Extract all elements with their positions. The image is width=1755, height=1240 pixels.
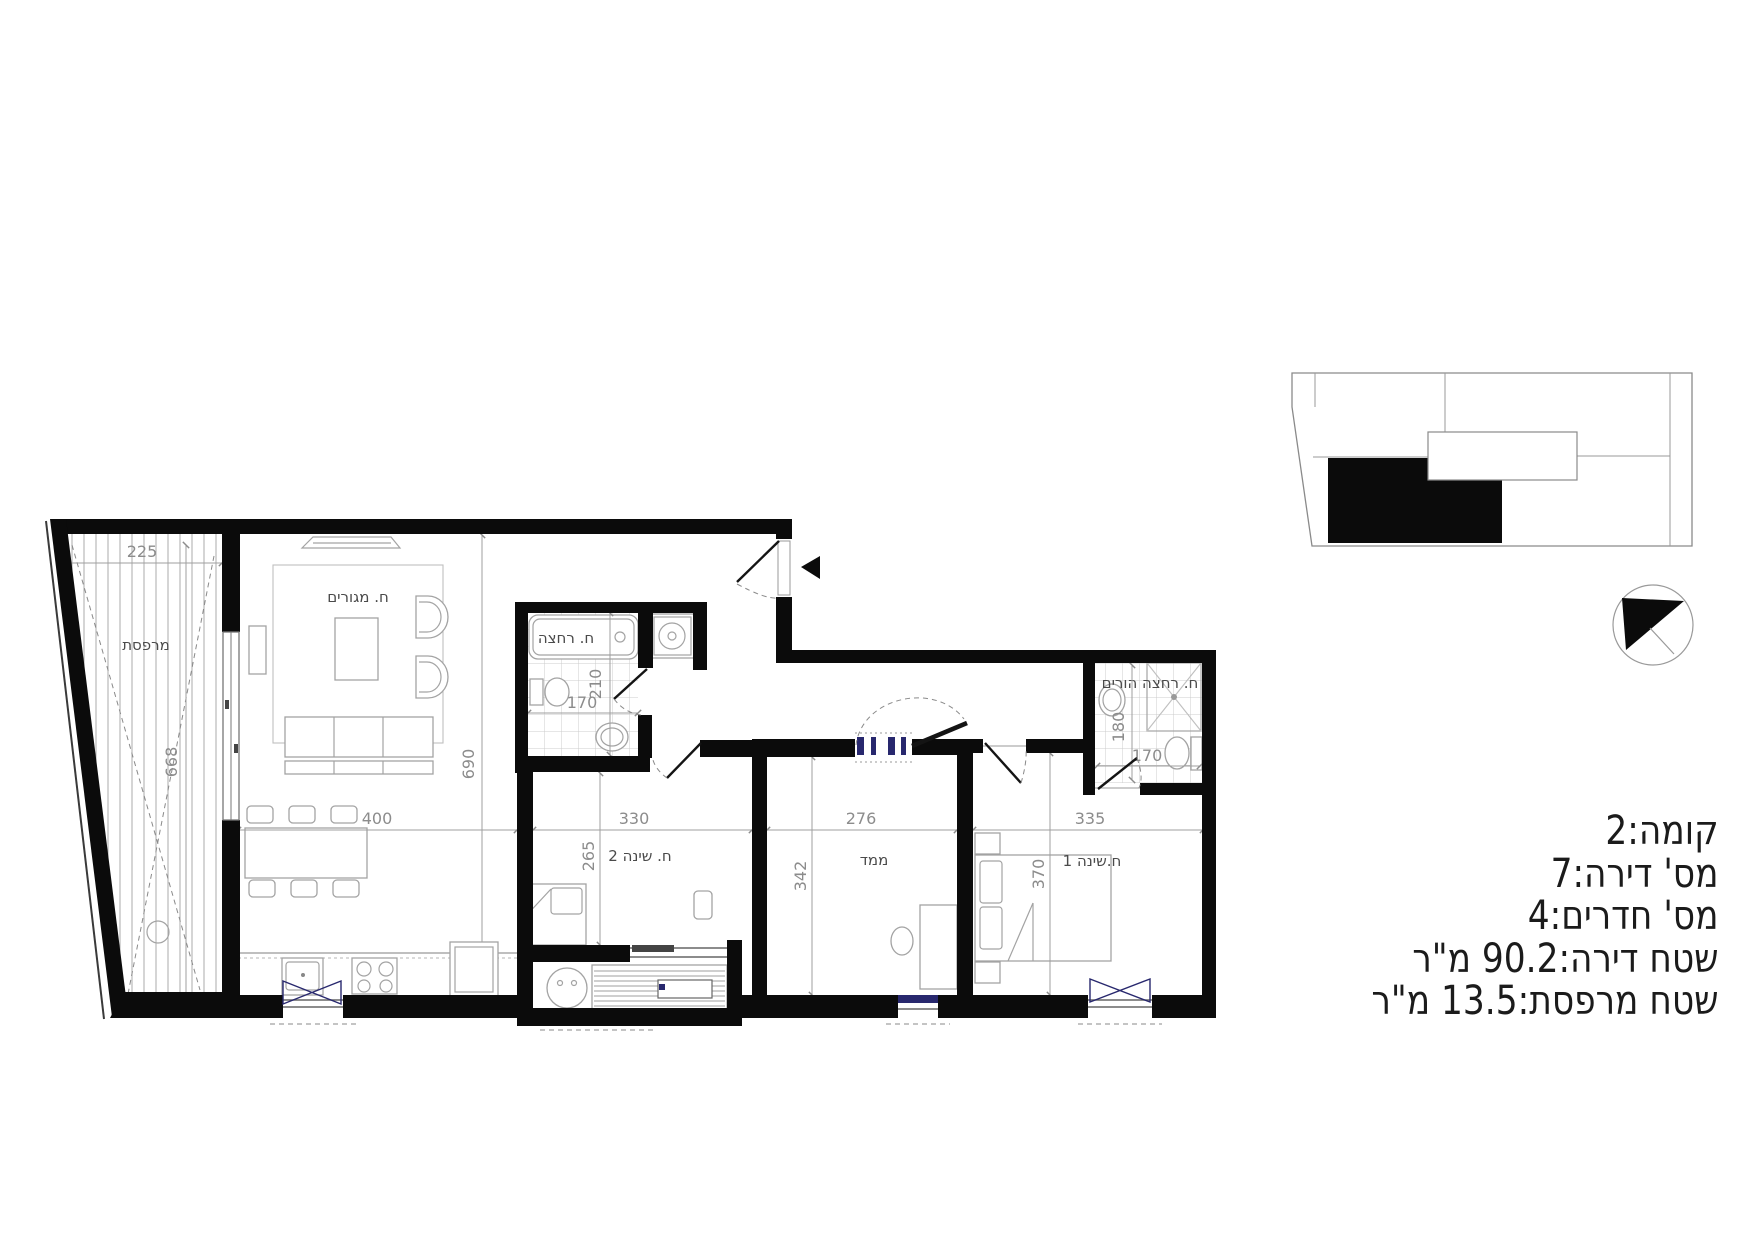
bedroom1-door <box>983 743 1026 783</box>
mamad-label: ממד <box>860 851 889 869</box>
desk-chair <box>891 927 913 955</box>
living-label: ח. מגורים <box>327 588 389 606</box>
bedroom1-label: ח.שינה 1 <box>1063 852 1122 870</box>
apartment-info-panel: קומה:2 מס' דירה:7 מס' חדרים:4 שטח דירה:9… <box>1371 810 1718 1023</box>
toilet <box>530 678 569 706</box>
info-line-area: שטח דירה:90.2 מ"ר <box>1371 938 1718 981</box>
balcony-width-dim: 225 <box>127 542 158 561</box>
bathroom: ח. רחצה 170 210 <box>528 613 694 756</box>
info-line-rooms: מס' חדרים:4 <box>1371 895 1718 938</box>
bathroom-depth-dim: 210 <box>586 669 605 700</box>
parents-bathroom-width-dim: 170 <box>1132 746 1163 765</box>
entry-arrow-icon <box>801 556 820 579</box>
floor-drain <box>147 921 169 943</box>
floorplan-canvas: מרפסת 225 668 <box>0 0 1755 1240</box>
kitchen <box>238 942 517 997</box>
dining-set <box>245 806 367 897</box>
service-balcony <box>547 965 727 1010</box>
bedroom2-width-dim: 330 <box>619 809 650 828</box>
fridge <box>450 942 498 997</box>
sofa <box>285 717 433 774</box>
bedroom2-door <box>653 743 701 778</box>
nightstand <box>694 891 712 919</box>
bedroom1-depth-dim: 370 <box>1029 859 1048 890</box>
living-depth-dim: 690 <box>459 749 478 780</box>
key-plan <box>1292 373 1692 546</box>
side-cabinet <box>249 626 266 674</box>
washbasin <box>596 723 628 751</box>
mamad-depth-dim: 342 <box>791 861 810 892</box>
parents-bathroom-label: ח. רחצה הורים <box>1102 674 1199 692</box>
mamad: ממד 276 342 <box>767 757 957 995</box>
info-line-floor: קומה:2 <box>1371 810 1718 853</box>
desk <box>920 905 957 989</box>
living-room: ח. מגורים 400 690 <box>238 535 517 992</box>
balcony-depth-dim: 668 <box>162 747 181 778</box>
nightstand <box>975 962 1000 983</box>
info-line-balcony-area: שטח מרפסת:13.5 מ"ר <box>1371 980 1718 1023</box>
louver-unit <box>592 965 727 1010</box>
parents-bathroom-depth-dim: 180 <box>1109 712 1128 743</box>
entry-door <box>737 541 820 598</box>
living-width-dim: 400 <box>362 809 393 828</box>
bathroom-label: ח. רחצה <box>538 629 594 647</box>
bedroom2-depth-dim: 265 <box>579 841 598 872</box>
nightstand <box>975 833 1000 854</box>
bedroom1-width-dim: 335 <box>1075 809 1106 828</box>
info-line-apartment: מס' דירה:7 <box>1371 853 1718 896</box>
cooktop <box>352 958 397 994</box>
north-arrow-icon <box>1613 585 1693 665</box>
coffee-table <box>335 618 378 680</box>
parents-bathroom: ח. רחצה הורים 180 170 <box>1095 663 1202 783</box>
floorplan-drawing: מרפסת 225 668 <box>0 0 1755 1240</box>
laundry-sink <box>547 968 587 1008</box>
bedroom1-window <box>1078 979 1162 1024</box>
bedroom2-label: ח. שינה 2 <box>608 847 671 865</box>
single-bed <box>524 884 586 945</box>
balcony-sliding-door <box>223 632 239 820</box>
bedroom-2: ח. שינה 2 330 265 <box>524 773 752 945</box>
washing-machine <box>651 614 694 658</box>
mamad-width-dim: 276 <box>846 809 877 828</box>
balcony-label: מרפסת <box>122 636 170 654</box>
toilet <box>1165 737 1202 770</box>
